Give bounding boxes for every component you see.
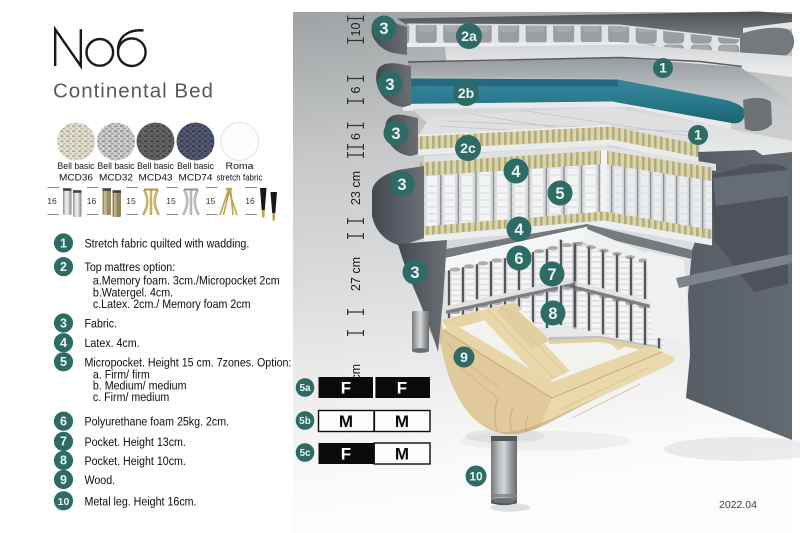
- svg-text:15: 15: [206, 196, 216, 206]
- svg-text:3: 3: [410, 264, 419, 282]
- svg-text:23 cm: 23 cm: [349, 171, 363, 205]
- svg-text:MCD36: MCD36: [59, 173, 93, 184]
- svg-text:5c: 5c: [299, 448, 311, 459]
- svg-text:1: 1: [60, 236, 67, 250]
- svg-text:16: 16: [47, 196, 57, 206]
- svg-text:5b: 5b: [299, 416, 311, 427]
- svg-text:7: 7: [60, 435, 67, 449]
- svg-text:Bell basic: Bell basic: [177, 161, 214, 172]
- svg-text:c. Firm/ medium: c. Firm/ medium: [93, 390, 169, 404]
- svg-text:stretch fabric: stretch fabric: [217, 173, 263, 184]
- svg-text:Bell basic: Bell basic: [137, 161, 174, 172]
- svg-text:5: 5: [555, 185, 564, 203]
- svg-text:Metal leg. Height 16cm.: Metal leg. Height 16cm.: [85, 494, 197, 508]
- svg-text:Top mattres option:: Top mattres option:: [85, 260, 176, 274]
- svg-text:MCD43: MCD43: [139, 173, 173, 184]
- svg-text:Pocket. Height 10cm.: Pocket. Height 10cm.: [85, 454, 186, 468]
- svg-text:c.Latex. 2cm./ Memory foam 2cm: c.Latex. 2cm./ Memory foam 2cm: [93, 297, 251, 311]
- svg-text:MCD74: MCD74: [179, 173, 214, 184]
- svg-text:2: 2: [60, 260, 67, 274]
- svg-text:6: 6: [514, 250, 523, 268]
- svg-text:Polyurethane foam 25kg. 2cm.: Polyurethane foam 25kg. 2cm.: [85, 415, 230, 429]
- svg-text:8: 8: [548, 305, 557, 323]
- svg-text:2a: 2a: [461, 28, 477, 44]
- svg-text:MCD32: MCD32: [99, 173, 133, 184]
- svg-text:2b: 2b: [458, 85, 474, 101]
- svg-text:Bell basic: Bell basic: [58, 161, 95, 172]
- svg-text:Fabric.: Fabric.: [85, 317, 118, 331]
- svg-text:10: 10: [469, 469, 483, 483]
- svg-text:2022.04: 2022.04: [719, 499, 757, 511]
- svg-text:4: 4: [514, 221, 524, 239]
- svg-text:Pocket. Height 13cm.: Pocket. Height 13cm.: [85, 435, 186, 449]
- svg-text:3: 3: [385, 76, 394, 94]
- svg-text:Stretch fabric quilted with wa: Stretch fabric quilted with wadding.: [85, 237, 250, 251]
- svg-text:16: 16: [87, 196, 97, 206]
- svg-text:9: 9: [460, 349, 468, 365]
- svg-text:6: 6: [60, 415, 67, 429]
- svg-text:Roma: Roma: [226, 161, 255, 172]
- svg-text:27 cm: 27 cm: [349, 257, 363, 291]
- svg-text:M: M: [395, 445, 409, 464]
- svg-text:2c: 2c: [460, 140, 476, 156]
- svg-text:15: 15: [166, 196, 176, 206]
- svg-text:6: 6: [349, 133, 363, 140]
- svg-text:F: F: [397, 379, 407, 398]
- svg-text:3: 3: [397, 176, 406, 194]
- svg-text:5: 5: [60, 355, 67, 369]
- svg-text:4: 4: [511, 163, 521, 181]
- svg-text:3: 3: [379, 20, 388, 38]
- svg-text:3: 3: [391, 125, 400, 143]
- svg-text:M: M: [339, 412, 353, 431]
- svg-text:1: 1: [659, 60, 667, 76]
- svg-text:Wood.: Wood.: [85, 473, 116, 487]
- svg-text:Latex. 4cm.: Latex. 4cm.: [85, 336, 140, 350]
- svg-text:Bell basic: Bell basic: [98, 161, 135, 172]
- svg-text:15: 15: [126, 196, 136, 206]
- svg-text:4: 4: [60, 336, 67, 350]
- svg-text:3: 3: [60, 316, 67, 330]
- svg-text:M: M: [395, 412, 409, 431]
- svg-text:1: 1: [694, 127, 702, 143]
- svg-text:Continental Bed: Continental Bed: [53, 80, 214, 103]
- svg-text:5a: 5a: [299, 383, 311, 394]
- svg-text:F: F: [341, 445, 351, 464]
- svg-text:8: 8: [60, 454, 67, 468]
- svg-text:6: 6: [349, 86, 363, 93]
- svg-text:10: 10: [58, 496, 70, 508]
- svg-text:10: 10: [349, 23, 363, 37]
- svg-text:9: 9: [60, 473, 67, 487]
- svg-text:F: F: [341, 379, 351, 398]
- svg-text:16: 16: [245, 196, 255, 206]
- svg-text:7: 7: [547, 266, 556, 284]
